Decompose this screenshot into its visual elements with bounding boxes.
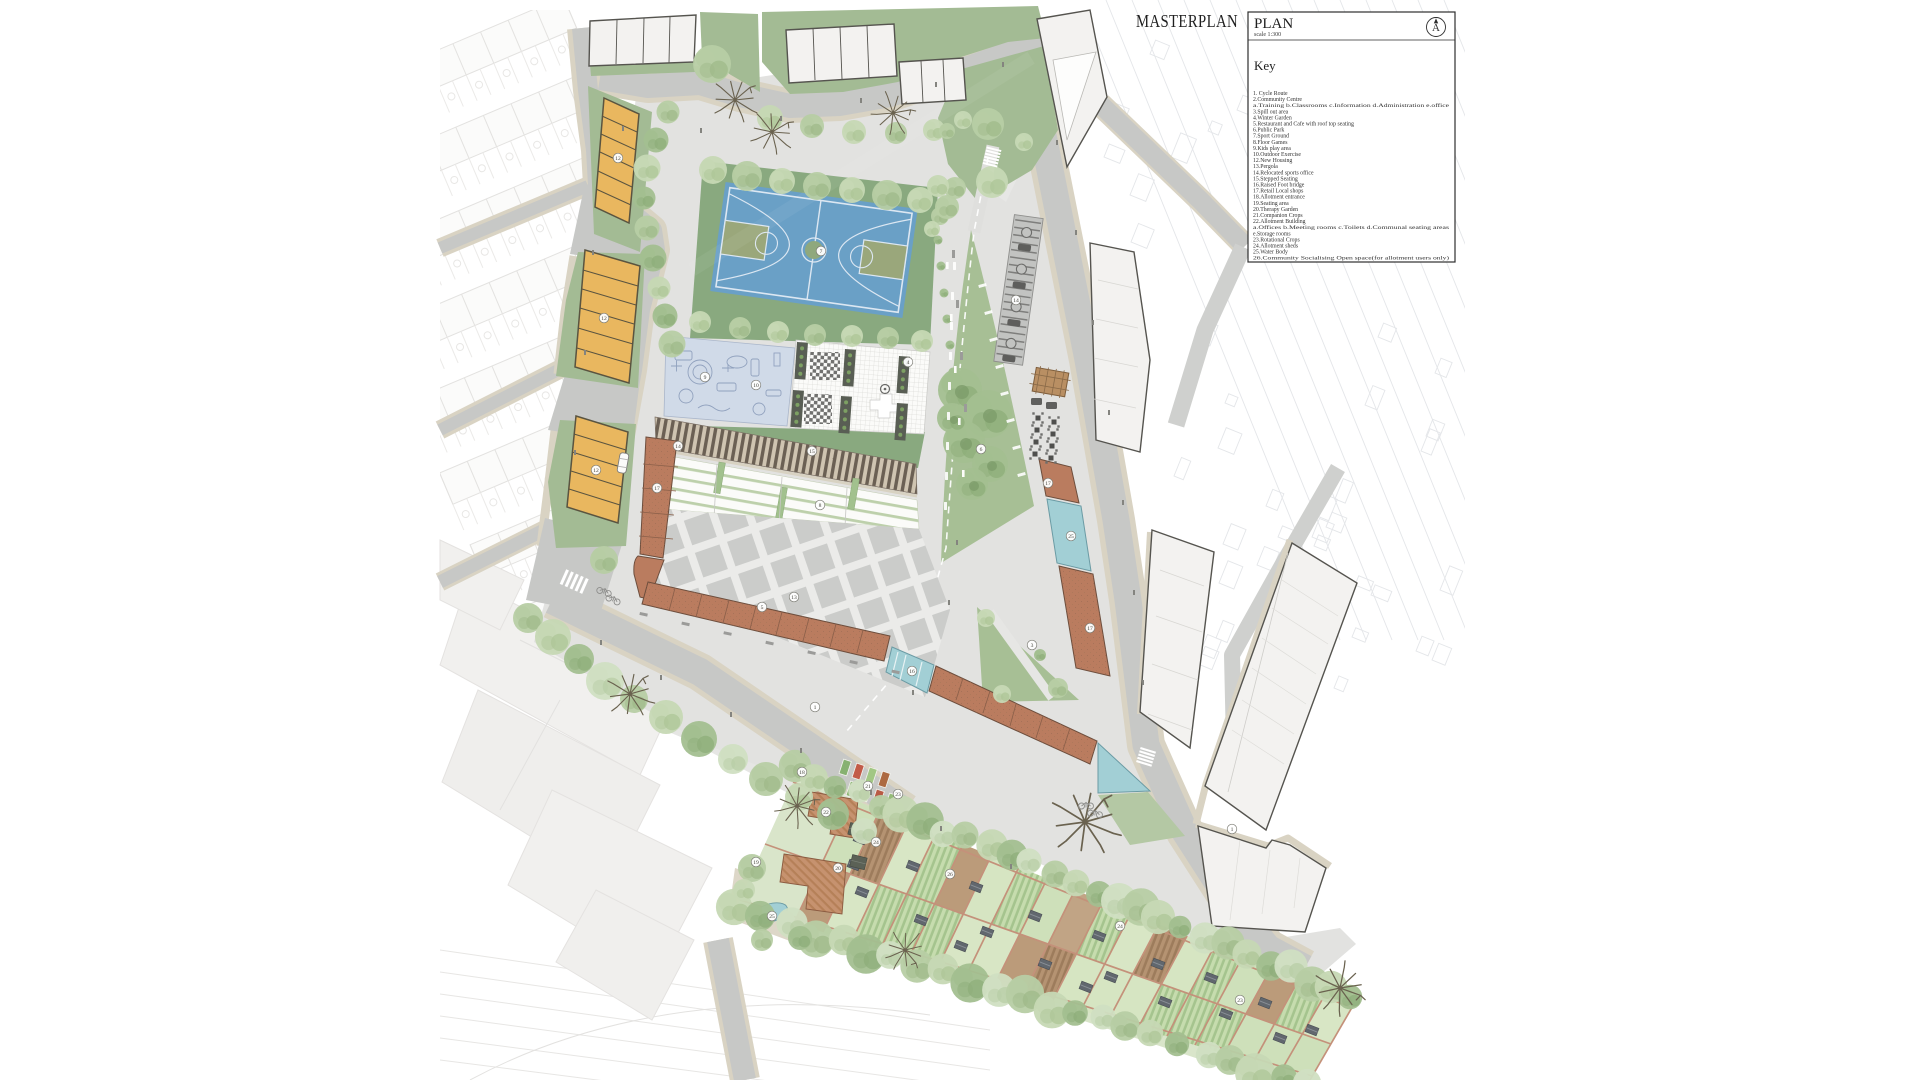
svg-text:4.Winter Garden: 4.Winter Garden: [1253, 115, 1292, 121]
svg-text:15.Stepped Seating: 15.Stepped Seating: [1253, 176, 1298, 182]
svg-text:23: 23: [895, 792, 901, 798]
svg-text:24: 24: [1117, 924, 1123, 930]
svg-text:14: 14: [1013, 298, 1019, 304]
svg-text:16.Raised Foot bridge: 16.Raised Foot bridge: [1253, 183, 1305, 189]
svg-text:7.Sport Ground: 7.Sport Ground: [1253, 134, 1289, 140]
svg-text:17: 17: [654, 486, 660, 492]
svg-text:13.Pergola: 13.Pergola: [1253, 164, 1278, 170]
svg-text:12: 12: [601, 316, 607, 322]
svg-text:a.Offices b.Meeting rooms c: a.Offices b.Meeting rooms c.Toilets d.Co…: [1253, 224, 1449, 231]
svg-text:1. Cycle Route: 1. Cycle Route: [1253, 91, 1288, 97]
svg-text:12.New Housing: 12.New Housing: [1253, 158, 1292, 164]
svg-text:23.Rotational Crops: 23.Rotational Crops: [1253, 237, 1300, 243]
svg-text:18.Allotment entrance: 18.Allotment entrance: [1253, 195, 1305, 201]
svg-text:3: 3: [1031, 643, 1034, 649]
svg-text:e.Storage rooms: e.Storage rooms: [1253, 231, 1291, 237]
svg-text:3.Spill out area: 3.Spill out area: [1253, 109, 1289, 115]
svg-text:10: 10: [753, 383, 759, 389]
svg-text:25: 25: [769, 914, 775, 920]
svg-text:21.Companion Crops: 21.Companion Crops: [1253, 213, 1303, 219]
svg-text:2.Community Centre: 2.Community Centre: [1253, 97, 1302, 103]
svg-text:8: 8: [819, 503, 822, 509]
svg-text:17: 17: [1087, 626, 1093, 632]
svg-text:17.Retail Local shops: 17.Retail Local shops: [1253, 189, 1304, 195]
svg-text:PLAN: PLAN: [1254, 16, 1293, 32]
svg-text:1: 1: [814, 705, 817, 711]
svg-text:Key: Key: [1254, 58, 1276, 73]
svg-text:24: 24: [873, 840, 879, 846]
svg-text:9.Kids play area: 9.Kids play area: [1253, 146, 1291, 152]
svg-text:4: 4: [907, 360, 910, 366]
svg-text:20.Therapy Garden: 20.Therapy Garden: [1253, 207, 1298, 213]
svg-text:10.Outdoor Exercise: 10.Outdoor Exercise: [1253, 152, 1301, 158]
svg-text:26.Community Socialising Open: 26.Community Socialising Open space(for …: [1253, 255, 1449, 262]
svg-text:1: 1: [1231, 827, 1234, 833]
svg-text:8.Floor Games: 8.Floor Games: [1253, 140, 1288, 146]
svg-text:16: 16: [909, 669, 915, 675]
svg-text:7: 7: [820, 249, 823, 255]
svg-text:6.Public Park: 6.Public Park: [1253, 128, 1284, 134]
svg-text:a.Training b.Classrooms c.Info: a.Training b.Classrooms c.Information d.…: [1253, 102, 1450, 109]
svg-text:21: 21: [865, 784, 871, 790]
svg-text:24.Allotment sheds: 24.Allotment sheds: [1253, 244, 1299, 250]
svg-text:17: 17: [1045, 481, 1051, 487]
svg-text:5.Restaurant and Cafe with roo: 5.Restaurant and Cafe with roof top seat…: [1253, 121, 1354, 128]
svg-text:13: 13: [791, 595, 797, 601]
svg-text:6: 6: [980, 447, 983, 453]
svg-text:19: 19: [753, 860, 759, 866]
svg-text:A: A: [1432, 22, 1440, 34]
svg-text:19.Seating area: 19.Seating area: [1253, 201, 1289, 207]
svg-text:MASTERPLAN: MASTERPLAN: [1136, 11, 1238, 31]
svg-text:14.Relocated sports office: 14.Relocated sports office: [1253, 169, 1314, 176]
svg-text:12: 12: [593, 468, 599, 474]
svg-text:25.Water Body: 25.Water Body: [1253, 250, 1288, 256]
svg-text:14: 14: [675, 444, 681, 450]
svg-text:26: 26: [947, 872, 953, 878]
svg-text:22: 22: [823, 810, 829, 816]
svg-text:9: 9: [704, 375, 707, 381]
svg-text:25: 25: [1068, 534, 1074, 540]
svg-text:15: 15: [809, 449, 815, 455]
svg-text:scale 1:300: scale 1:300: [1254, 32, 1281, 38]
svg-text:23: 23: [1237, 998, 1243, 1004]
svg-text:20: 20: [835, 866, 841, 872]
svg-text:12: 12: [615, 156, 621, 162]
svg-text:18: 18: [799, 770, 805, 776]
svg-text:22.Allotment Building: 22.Allotment Building: [1253, 219, 1306, 225]
svg-text:5: 5: [761, 605, 764, 611]
